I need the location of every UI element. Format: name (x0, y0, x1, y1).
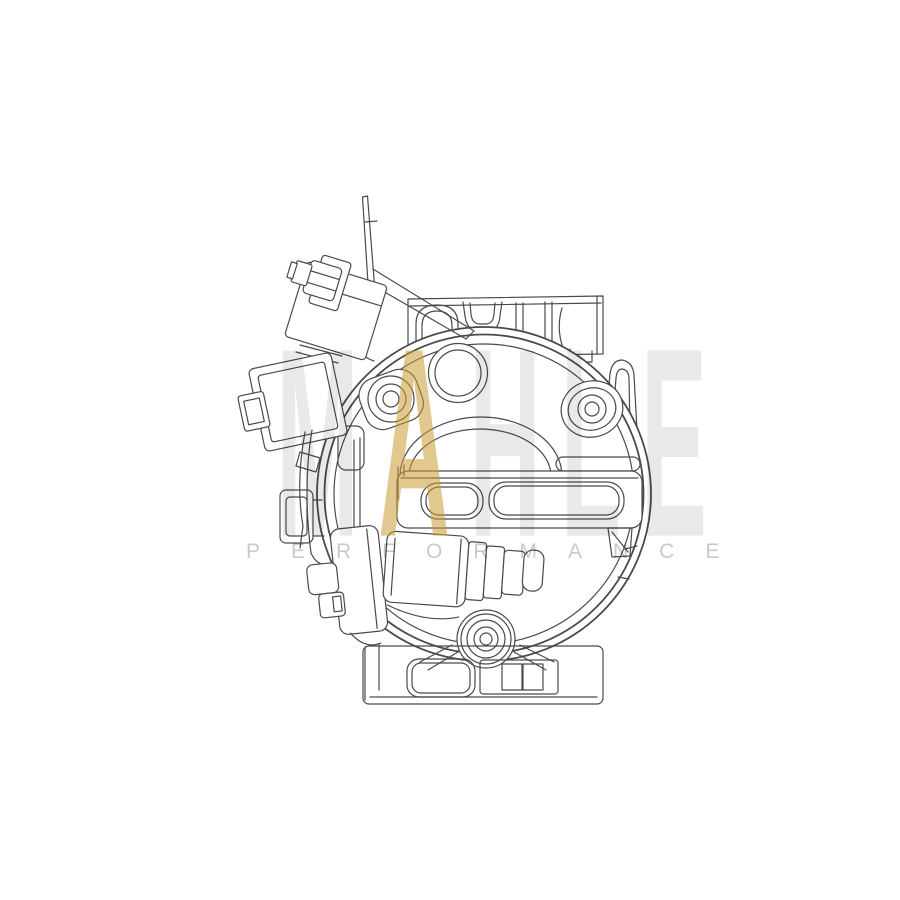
product-image-canvas: MAHLE PERFORMANCE (0, 0, 900, 900)
lower-left-block (303, 525, 390, 651)
compressor-technical-drawing (0, 0, 900, 900)
